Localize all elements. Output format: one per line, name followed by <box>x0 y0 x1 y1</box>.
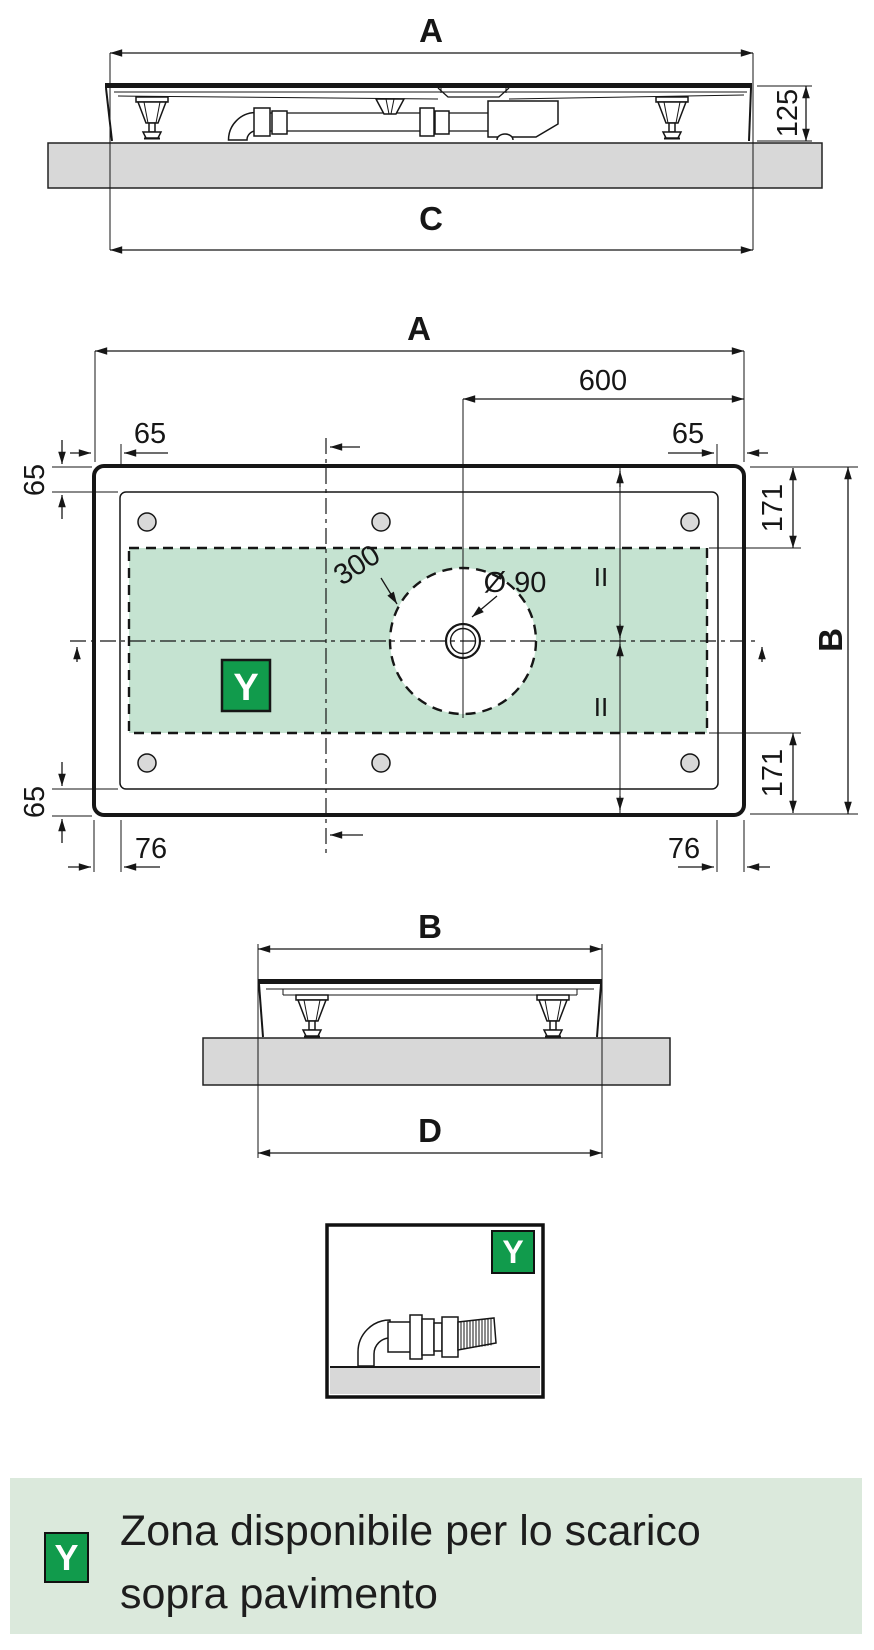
y-zone-badge-plan: Y <box>222 660 270 711</box>
equal-mark: II <box>594 562 608 592</box>
y-zone-badge-legend: Y <box>45 1533 88 1582</box>
floor-slab-end <box>203 1038 670 1085</box>
plan-view: A 600 65 65 <box>19 310 858 872</box>
y-zone-badge-detail: Y <box>492 1231 534 1273</box>
dim-label-d: D <box>418 1112 442 1149</box>
dim-label-65: 65 <box>19 464 51 496</box>
drain-trap <box>488 101 558 137</box>
dim-label-76: 76 <box>135 833 167 865</box>
legend-text-line1: Zona disponibile per lo scarico <box>120 1507 701 1555</box>
dim-label-diameter: Ø 90 <box>484 567 547 599</box>
zone-symbol: Y <box>233 667 258 709</box>
technical-drawing: A <box>0 0 874 1650</box>
legend: Y Zona disponibile per lo scarico sopra … <box>10 1478 862 1634</box>
zone-symbol: Y <box>502 1234 523 1270</box>
dim-label-b-elev: B <box>418 908 442 945</box>
dim-label-b-plan: B <box>812 628 849 652</box>
dim-label-125: 125 <box>772 89 804 137</box>
drain-elbow <box>229 113 257 141</box>
detail-floor <box>330 1367 540 1394</box>
floor-slab <box>48 143 822 188</box>
drain-detail-view: Y <box>327 1225 543 1397</box>
equal-mark: II <box>594 692 608 722</box>
side-elevation-view: A <box>48 12 822 250</box>
dim-label-a-plan: A <box>407 310 431 347</box>
zone-symbol: Y <box>54 1537 78 1578</box>
dim-76-left: 76 <box>68 820 167 872</box>
tray-end-section <box>258 982 602 1038</box>
dim-label-76: 76 <box>668 833 700 865</box>
dim-label-a-top: A <box>419 12 443 49</box>
dim-label-171: 171 <box>757 484 789 532</box>
dim-label-65: 65 <box>134 418 166 450</box>
dim-label-600: 600 <box>579 365 627 397</box>
dim-label-c: C <box>419 200 443 237</box>
legend-text-line2: sopra pavimento <box>120 1570 438 1618</box>
dim-76-right: 76 <box>668 820 770 872</box>
tray-side-section <box>105 86 752 142</box>
dim-label-171: 171 <box>757 749 789 797</box>
dim-label-65: 65 <box>672 418 704 450</box>
dim-125: 125 <box>757 86 812 141</box>
end-elevation-view: B D <box>203 908 670 1158</box>
dim-label-65: 65 <box>19 786 51 818</box>
